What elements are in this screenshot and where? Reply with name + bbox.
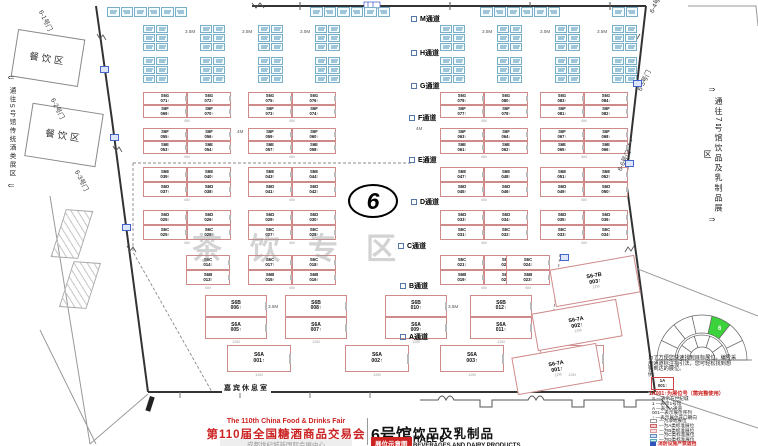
booth-dim-label: 6M (289, 286, 294, 290)
blue-booth-cell (555, 34, 567, 42)
booth-dim-label: 12M (232, 340, 239, 344)
booth-cell: S6E054↑ (187, 141, 231, 154)
blue-booth-cell (453, 66, 465, 74)
booth-cell: S6E057↑ (248, 141, 292, 154)
blue-booth-cell (440, 75, 452, 83)
aisle-marker-icon (411, 16, 417, 22)
blue-booth-cell (494, 7, 507, 17)
blue-booth-cell (213, 57, 225, 65)
booth-cell: S6G084↑ (584, 92, 628, 105)
blue-booth-cell (453, 75, 465, 83)
hall-number-circle: 6 (348, 184, 398, 218)
blue-booth-cell (148, 7, 161, 17)
blue-booth-cell (555, 43, 567, 51)
blue-booth-cell (161, 7, 174, 17)
blue-booth-cell (143, 75, 155, 83)
booth-dim-label: 6M (581, 155, 586, 159)
blue-booth-cell (324, 7, 337, 17)
booth-cell: S6E039↑ (143, 167, 187, 182)
blue-booth-cell (271, 43, 283, 51)
booth-cell: S6G071↑ (143, 92, 187, 105)
booth-dim-label: 6M (289, 119, 294, 123)
fair-title-en: The 110th China Food & Drinks Fair (196, 418, 376, 425)
gap-dim-label: 3.5M (448, 304, 458, 309)
left-corridor-text: 通往5号馆传统酒类展区 (6, 84, 16, 180)
blue-booth-cell (625, 25, 637, 33)
booth-dim-label: 6M (581, 119, 586, 123)
booth-dim-label: 12M (373, 373, 380, 377)
blue-booth-cell (555, 57, 567, 65)
blue-booth-cell (453, 34, 465, 42)
booth-cell: S6F074↑ (292, 105, 336, 118)
booth-cell: S6C032↑ (484, 225, 528, 240)
blue-booth-cell (328, 66, 340, 74)
legend-fire-note: 消防设施严禁遮挡 (650, 440, 696, 446)
booth-cell: S6C033↑ (540, 225, 584, 240)
blue-booth-cell (521, 7, 534, 17)
booth-dim-label: 12M (255, 373, 262, 377)
booth-cell: S6F081↑ (540, 105, 584, 118)
booth-cell: S6F067↑ (540, 128, 584, 141)
blue-booth-cell (200, 34, 212, 42)
booth-cell: S6D042↑ (292, 182, 336, 197)
booth-dim-label: 6M (205, 286, 210, 290)
blue-booth-cell (156, 57, 168, 65)
door-icon (110, 134, 119, 141)
blue-booth-cell (497, 75, 509, 83)
booth-cell: S6F055↑ (143, 128, 187, 141)
booth-cell: S6D026↑ (187, 210, 231, 225)
blue-booth-cell (534, 7, 547, 17)
blue-booth-cell (200, 75, 212, 83)
booth-cell: S6D035↑ (540, 210, 584, 225)
aisle-label: B通道 (400, 281, 428, 291)
right-corridor-text: 通往7号馆饮品及乳制品展区 (702, 96, 724, 214)
aisle-marker-icon (400, 283, 406, 289)
blue-booth-cell (497, 66, 509, 74)
booth-cell: S6G083↑ (540, 92, 584, 105)
blue-booth-cell (507, 7, 520, 17)
aisle-marker-icon (409, 157, 415, 163)
booth-cell: S6E062↑ (484, 141, 528, 154)
booth-dim-label: 6M (481, 198, 486, 202)
booth-cell: S6D030↑ (292, 210, 336, 225)
booth-cell: S6F059↑ (248, 128, 292, 141)
aisle-marker-icon (411, 83, 417, 89)
booth-dim-label: 6M (581, 198, 586, 202)
blue-booth-cell (143, 43, 155, 51)
blue-booth-cell (328, 75, 340, 83)
blue-booth-cell (258, 57, 270, 65)
blue-booth-cell (271, 57, 283, 65)
blue-booth-cell (156, 66, 168, 74)
arrow-right-icon: ⇒ (702, 216, 722, 224)
dining-area-label: 餐饮区 (28, 48, 67, 68)
blue-booth-cell (497, 34, 509, 42)
booth-cell: S6F077↑ (440, 105, 484, 118)
floor-plan: ⇐ 通往5号馆传统酒类展区 ⇐ ⇒ 通往7号馆饮品及乳制品展区 ⇒ 餐饮区 餐饮… (0, 0, 758, 446)
blue-booth-cell (568, 75, 580, 83)
gap-dim-label: 4M (416, 126, 422, 131)
blue-booth-cell (568, 57, 580, 65)
aisle-marker-icon (409, 115, 415, 121)
booth-cell: S6D034↑ (484, 210, 528, 225)
booth-cell: S6E065↑ (540, 141, 584, 154)
blue-booth-cell (510, 34, 522, 42)
booth-cell: S6E051↑ (540, 167, 584, 182)
blue-booth-cell (453, 25, 465, 33)
booth-cell: S6F068↑ (584, 128, 628, 141)
booth-cell: S6D025↑ (143, 210, 187, 225)
blue-booth-cell (258, 43, 270, 51)
booth-type-swatch (650, 434, 657, 438)
legend-example-bottom: 001↑ (658, 384, 667, 388)
booth-dim-label: 12M (568, 373, 575, 377)
blue-booth-cell (351, 7, 364, 17)
blue-booth-cell (315, 66, 327, 74)
booth-cell: S6G079↑ (440, 92, 484, 105)
booth-cell: S6E061↑ (440, 141, 484, 154)
booth-cell: S6E040↑ (187, 167, 231, 182)
booth-dim-label: 6M (184, 198, 189, 202)
blue-booth-cell (213, 75, 225, 83)
booth-cell: S6G072↑ (187, 92, 231, 105)
dining-area-label: 餐饮区 (44, 125, 83, 145)
booth-cell: S6C024↑ (506, 255, 550, 270)
blue-booth-cell (271, 25, 283, 33)
gap-dim-label: 3.5M (185, 29, 195, 34)
blue-booth-cell (143, 34, 155, 42)
blue-booth-cell (548, 7, 561, 17)
blue-booth-cell (315, 57, 327, 65)
booth-cell: S6F060↑ (292, 128, 336, 141)
door-icon (122, 224, 131, 231)
booth-cell: S6E044↑ (292, 167, 336, 182)
blue-booth-cell (440, 25, 452, 33)
aisle-label: D通道 (411, 197, 439, 207)
booth-cell: S6E047↑ (440, 167, 484, 182)
walls-linework (0, 0, 758, 446)
blue-booth-cell (555, 66, 567, 74)
booth-cell: S6B006↑ (205, 295, 267, 317)
door-icon (100, 66, 109, 73)
booth-cell: S6B019↑ (440, 270, 484, 285)
blue-booth-cell (213, 43, 225, 51)
right-corridor-note: ⇒ 通往7号馆饮品及乳制品展区 ⇒ (702, 86, 722, 224)
booth-cell: S6F056↑ (187, 128, 231, 141)
blue-booth-cell (568, 25, 580, 33)
booth-cell: S6D038↑ (187, 182, 231, 197)
booth-cell: S6A002↑ (345, 345, 409, 372)
blue-booth-cell (328, 43, 340, 51)
booth-cell: S6G076↑ (292, 92, 336, 105)
booth-cell: S6D049↑ (540, 182, 584, 197)
wall-wedge (145, 396, 154, 412)
blue-booth-cell (453, 43, 465, 51)
venue-name: 成都世纪城新国际会展中心 (220, 439, 352, 446)
blue-booth-cell (555, 25, 567, 33)
booth-dim-label: 6M (525, 286, 530, 290)
blue-booth-cell (328, 34, 340, 42)
gap-dim-label: 3.5M (268, 304, 278, 309)
blue-booth-cell (315, 25, 327, 33)
blue-booth-cell (315, 75, 327, 83)
aisle-label: G通道 (411, 81, 439, 91)
legend-example-booth: 1A 001↑ (651, 377, 674, 390)
blue-booth-cell (453, 57, 465, 65)
tea-zone-watermark: 茶饮专区 (192, 224, 424, 268)
blue-booth-cell (271, 34, 283, 42)
blue-booth-cell (568, 34, 580, 42)
blue-booth-cell (497, 43, 509, 51)
blue-booth-cell (364, 7, 377, 17)
arrow-left-icon: ⇐ (2, 182, 20, 190)
blue-booth-cell (200, 25, 212, 33)
blue-booth-cell (143, 25, 155, 33)
blue-booth-cell (612, 57, 624, 65)
blue-booth-cell (328, 57, 340, 65)
gap-dim-label: 4M (237, 129, 243, 134)
gap-dim-label: 3.5M (482, 29, 492, 34)
booth-cell: S6D046↑ (484, 182, 528, 197)
blue-booth-cell (200, 43, 212, 51)
fire-note-text: 消防设施严禁遮挡 (658, 440, 696, 446)
booth-cell: S6B012↑ (470, 295, 532, 317)
blue-booth-cell (134, 7, 147, 17)
door-icon (625, 160, 634, 167)
gap-dim-label: 3.5M (597, 29, 607, 34)
blue-booth-cell (440, 57, 452, 65)
booth-dim-label: 6M (481, 119, 486, 123)
blue-booth-cell (156, 25, 168, 33)
booth-cell: S6A007↑ (285, 317, 347, 339)
blue-booth-cell (213, 25, 225, 33)
blue-booth-cell (625, 43, 637, 51)
blue-booth-cell (200, 57, 212, 65)
booth-cell: S6B010↑ (385, 295, 447, 317)
booth-cell: S6B023↑ (506, 270, 550, 285)
blue-booth-cell (625, 66, 637, 74)
booth-cell: S6F073↑ (248, 105, 292, 118)
arrow-left-icon: ⇐ (2, 74, 20, 82)
booth-cell: S6F078↑ (484, 105, 528, 118)
booth-cell: S6A003↑ (440, 345, 504, 372)
booth-dim-label: 6M (289, 198, 294, 202)
booth-dim-label: 6M (289, 155, 294, 159)
booth-cell: S6A005↑ (205, 317, 267, 339)
booth-cell: S6F069↑ (143, 105, 187, 118)
gap-dim-label: 3.5M (300, 29, 310, 34)
blue-booth-cell (626, 7, 639, 17)
aisle-label: E通道 (409, 155, 437, 165)
blue-booth-cell (328, 25, 340, 33)
booth-cell: S6D029↑ (248, 210, 292, 225)
blue-booth-cell (497, 57, 509, 65)
blue-booth-cell (378, 7, 391, 17)
booth-cell: S6G075↑ (248, 92, 292, 105)
booth-cell: S6E048↑ (484, 167, 528, 182)
booth-cell: S6A001↑ (227, 345, 291, 372)
booth-cell: S6E053↑ (143, 141, 187, 154)
blue-booth-cell (625, 57, 637, 65)
fire-equipment-icon (650, 442, 656, 446)
left-corridor-note: ⇐ 通往5号馆传统酒类展区 ⇐ (2, 74, 20, 190)
booth-dim-label: 6M (481, 286, 486, 290)
booth-dim-label: 6M (184, 155, 189, 159)
blue-booth-cell (612, 43, 624, 51)
blue-booth-cell (315, 34, 327, 42)
hall-category-en: BEVERAGES AND DAIRY PRODUCTS (413, 443, 520, 446)
booth-cell: S6F082↑ (584, 105, 628, 118)
blue-booth-cell (510, 66, 522, 74)
blue-booth-cell (156, 34, 168, 42)
blue-booth-cell (568, 43, 580, 51)
blue-booth-cell (440, 66, 452, 74)
booth-cell: S6D036↑ (584, 210, 628, 225)
blue-booth-cell (213, 66, 225, 74)
booth-cell: S6E043↑ (248, 167, 292, 182)
blue-booth-cell (156, 75, 168, 83)
booth-type-swatch (650, 419, 657, 423)
gap-dim-label: 3.5M (540, 29, 550, 34)
aisle-label: A通道 (400, 332, 428, 342)
blue-booth-cell (258, 25, 270, 33)
blue-booth-cell (510, 43, 522, 51)
booth-dim-label: 6M (184, 241, 189, 245)
booth-cell: S6F070↑ (187, 105, 231, 118)
aisle-marker-icon (411, 50, 417, 56)
gap-dim-label: 3.5M (242, 29, 252, 34)
booth-dim-label: 6M (184, 119, 189, 123)
blue-booth-cell (271, 75, 283, 83)
booth-cell: S6C031↑ (440, 225, 484, 240)
booth-cell: S6D050↑ (584, 182, 628, 197)
booth-cell: S6D045↑ (440, 182, 484, 197)
blue-booth-cell (156, 43, 168, 51)
booth-cell: S6F064↑ (484, 128, 528, 141)
blue-booth-cell (612, 25, 624, 33)
booth-dim-label: 12M (497, 340, 504, 344)
blue-booth-cell (143, 57, 155, 65)
legend-intro: 为了方便您快速找到目标展位，编号采用通道标注指引法，您可轻松找到想要到达的展位。… (648, 356, 756, 379)
blue-booth-cell (200, 66, 212, 74)
booth-cell: S6B016↑ (292, 270, 336, 285)
aisle-label: F通道 (409, 113, 436, 123)
booth-dim-label: 12M (312, 340, 319, 344)
blue-booth-cell (315, 43, 327, 51)
blue-booth-cell (258, 66, 270, 74)
blue-booth-cell (107, 7, 120, 17)
booth-cell: S6D041↑ (248, 182, 292, 197)
blue-booth-cell (175, 7, 188, 17)
hall-number: 6 (367, 188, 380, 215)
aisle-label: H通道 (411, 48, 439, 58)
aisle-marker-icon (400, 334, 406, 340)
door-icon (633, 80, 642, 87)
blue-booth-cell (440, 34, 452, 42)
blue-booth-cell (480, 7, 493, 17)
blue-booth-cell (271, 66, 283, 74)
blue-booth-cell (555, 75, 567, 83)
arrow-right-icon: ⇒ (702, 86, 722, 94)
booth-cell: S6C034↑ (584, 225, 628, 240)
blue-booth-cell (612, 75, 624, 83)
booth-cell: S6B008↑ (285, 295, 347, 317)
dining-area-1: 餐饮区 (11, 29, 86, 87)
blue-booth-cell (510, 75, 522, 83)
booth-cell: S6D033↑ (440, 210, 484, 225)
booth-dim-label: 6M (481, 241, 486, 245)
blue-booth-cell (440, 43, 452, 51)
booth-dim-label: 6M (581, 241, 586, 245)
door-icon (560, 254, 569, 261)
map-badge: 展位示意图 (371, 437, 412, 446)
blue-booth-cell (258, 75, 270, 83)
booth-cell: S6C021↑ (440, 255, 484, 270)
blue-booth-cell (612, 7, 625, 17)
blue-booth-cell (510, 57, 522, 65)
blue-booth-cell (497, 25, 509, 33)
booth-cell: S6E058↑ (292, 141, 336, 154)
guest-lounge-label: 嘉宾休息室 (222, 383, 271, 393)
blue-booth-cell (568, 66, 580, 74)
booth-cell: S6A011↑ (470, 317, 532, 339)
blue-booth-cell (258, 34, 270, 42)
blue-booth-cell (310, 7, 323, 17)
booth-cell: S6G080↑ (484, 92, 528, 105)
booth-cell: S6B015↑ (248, 270, 292, 285)
blue-booth-cell (213, 34, 225, 42)
booth-cell: S6B013↑ (186, 270, 230, 285)
blue-booth-cell (121, 7, 134, 17)
blue-booth-cell (143, 66, 155, 74)
title-divider (367, 418, 368, 445)
booth-dim-label: 12M (468, 373, 475, 377)
blue-booth-cell (337, 7, 350, 17)
booth-type-swatch (650, 424, 657, 428)
booth-type-swatch (650, 429, 657, 433)
blue-booth-cell (612, 66, 624, 74)
aisle-label: M通道 (411, 14, 440, 24)
blue-booth-cell (625, 34, 637, 42)
booth-cell: S6C025↑ (143, 225, 187, 240)
booth-dim-label: 6M (481, 155, 486, 159)
blue-booth-cell (612, 34, 624, 42)
blue-booth-cell (510, 25, 522, 33)
booth-cell: S6D037↑ (143, 182, 187, 197)
booth-cell: S6F063↑ (440, 128, 484, 141)
aisle-marker-icon (411, 199, 417, 205)
